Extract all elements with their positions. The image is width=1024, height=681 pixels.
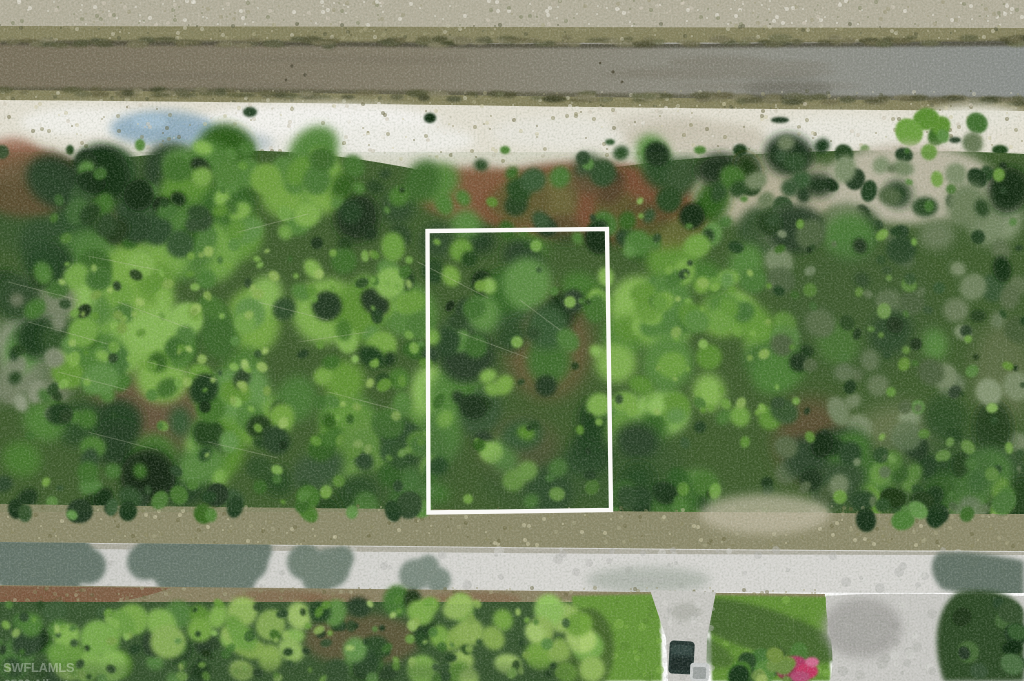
svg-text:SWFLAMLS: SWFLAMLS: [3, 660, 75, 675]
svg-text:6523 Albert: 6523 Albert: [4, 677, 68, 681]
